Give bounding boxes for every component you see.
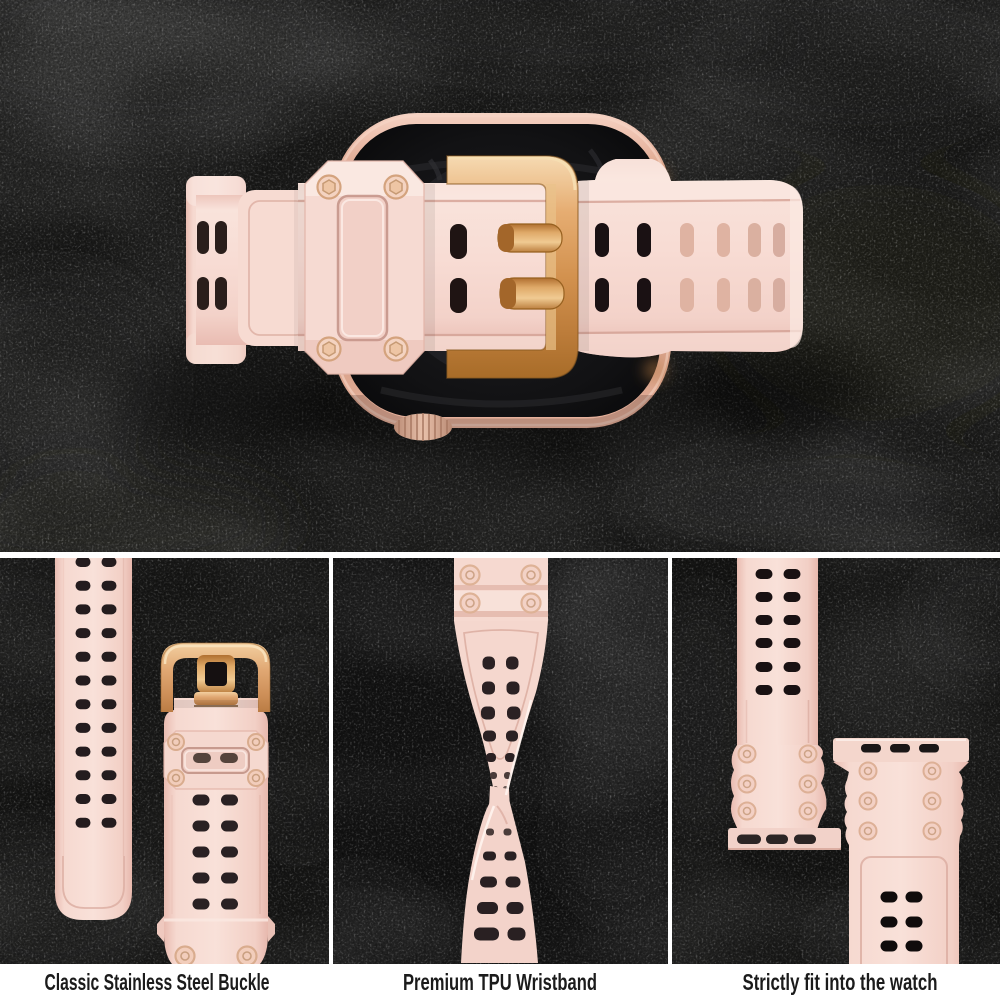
svg-text:Classic Stainless Steel Buckle: Classic Stainless Steel Buckle [45,969,270,995]
svg-text:Strictly fit into the watch: Strictly fit into the watch [743,969,938,995]
svg-text:Premium TPU Wristband: Premium TPU Wristband [403,969,597,995]
